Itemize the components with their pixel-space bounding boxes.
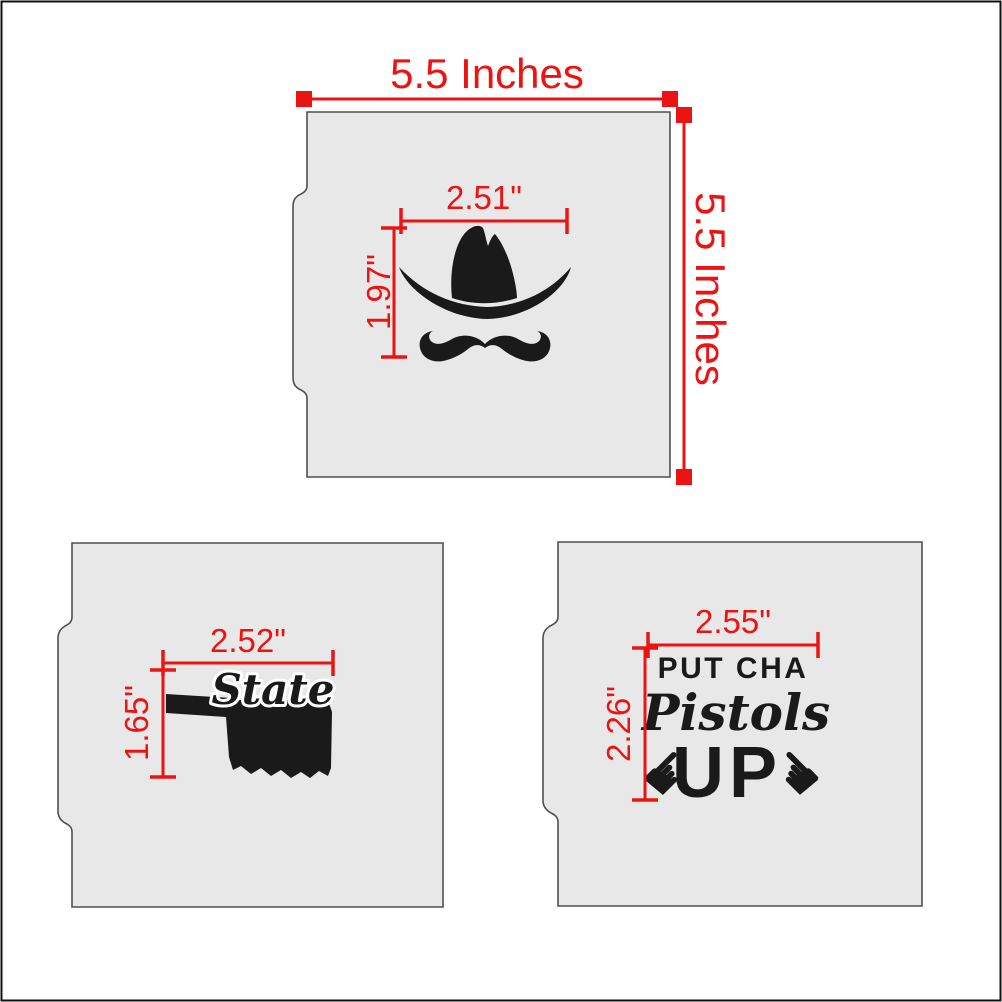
design-width-label: 2.55" [695,603,771,640]
outer-width-label: 5.5 Inches [390,50,584,97]
state-script-word: State [211,665,334,714]
outer-height-dimension: 5.5 Inches [676,107,734,485]
design-height-label: 1.97" [360,254,397,330]
design-width-label: 2.52" [210,622,286,659]
dim-endpoint-square [296,91,312,107]
stencil-product-image: 5.5 Inches 5.5 Inches 2.51" 1.97" [0,0,1002,1002]
design-height-label: 1.65" [118,685,155,761]
outer-height-label: 5.5 Inches [687,192,734,386]
dim-endpoint-square [676,107,692,123]
design-height-label: 2.26" [600,686,637,762]
design-width-label: 2.51" [446,179,522,216]
outer-width-dimension: 5.5 Inches [296,50,678,107]
stencil-product-diagram: 5.5 Inches 5.5 Inches 2.51" 1.97" [0,0,1002,1002]
pistols-line1-text: PUT CHA [658,652,809,685]
state-stencil: State 2.52" 1.65" [58,543,443,907]
cowboy-stencil: 5.5 Inches 5.5 Inches 2.51" 1.97" [293,50,734,485]
pistols-stencil: PUT CHA Pistols UP ☛ ☚ 2.55" 2.26" [543,542,922,906]
dim-endpoint-square [676,469,692,485]
dim-endpoint-square [662,91,678,107]
